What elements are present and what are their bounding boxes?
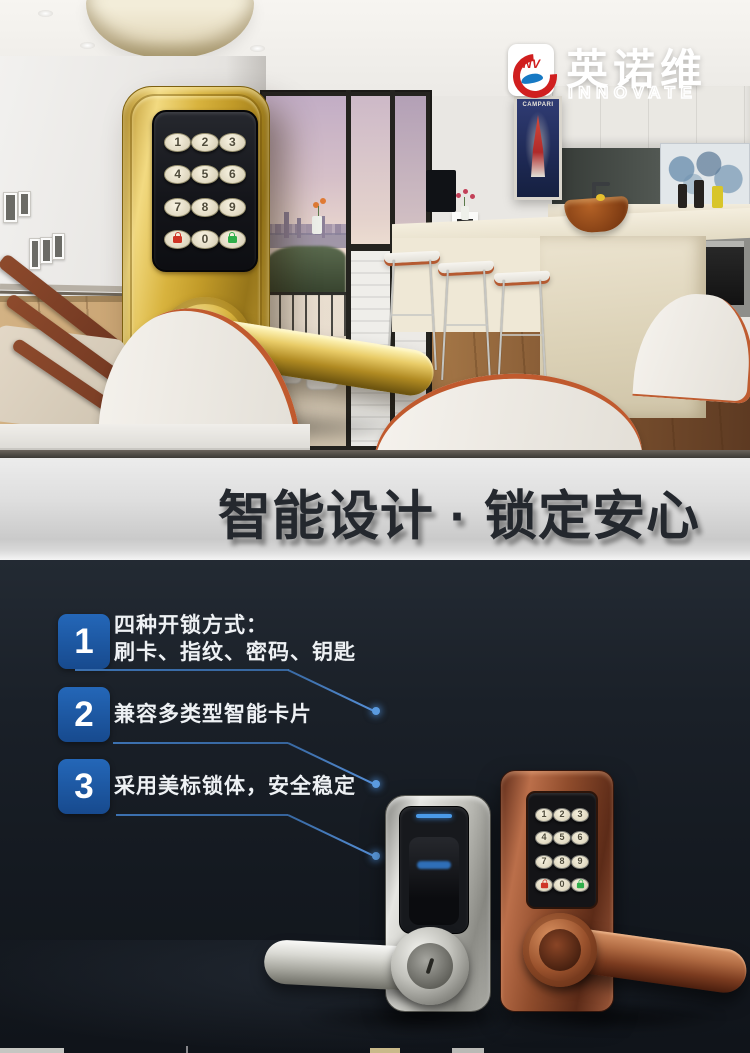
keypad-button-4: 4 xyxy=(535,831,553,845)
lock-icon xyxy=(173,236,182,243)
campari-poster: CAMPARI xyxy=(514,96,562,200)
feature-badge-3: 3 xyxy=(58,759,110,814)
feature-1-line-1: 四种开锁方式： xyxy=(114,612,268,639)
brand-name-english: INNOVATE xyxy=(568,83,697,103)
ceiling-spotlight xyxy=(250,45,265,52)
keypad-button-7: 7 xyxy=(164,198,191,217)
dining-table xyxy=(0,424,310,450)
logo-emblem-text: INV xyxy=(519,57,541,71)
next-section-fragment xyxy=(0,1048,64,1053)
next-section-fragment xyxy=(186,1046,188,1053)
keypad-button-3: 3 xyxy=(571,808,589,822)
unlock-icon xyxy=(228,236,237,243)
red-flower xyxy=(470,194,475,199)
product-poster-page: CAMPARI xyxy=(0,0,750,1053)
slogan-banner: 智能设计 · 锁定安心 xyxy=(0,458,750,560)
keypad-button-0: 0 xyxy=(553,878,571,892)
keypad-button-2: 2 xyxy=(191,133,218,152)
keypad-button-2: 2 xyxy=(553,808,571,822)
keypad-button-unlock xyxy=(219,230,246,249)
feature-2-dot xyxy=(372,780,380,788)
flower-vase xyxy=(461,206,469,220)
features-section: 1 四种开锁方式： 刷卡、指纹、密码、钥匙 2 兼容多类型智能卡片 3 采用美标… xyxy=(0,560,750,1053)
next-section-fragment xyxy=(452,1048,484,1053)
keypad-button-lock xyxy=(164,230,191,249)
keypad-button-9: 9 xyxy=(571,855,589,869)
keypad-button-8: 8 xyxy=(191,198,218,217)
keypad-button-6: 6 xyxy=(219,165,246,184)
gold-keypad-panel: 1 2 3 4 5 6 7 8 9 0 xyxy=(152,110,258,272)
feature-3-underline xyxy=(116,814,288,816)
next-section-fragment xyxy=(370,1048,400,1053)
feature-1-underline xyxy=(75,669,289,671)
feature-1-dot xyxy=(372,707,380,715)
brand-logo: INV 英诺维 INNOVATE xyxy=(508,36,746,104)
section-divider xyxy=(0,450,750,458)
feature-1-line-2: 刷卡、指纹、密码、钥匙 xyxy=(114,639,356,666)
keypad-button-5: 5 xyxy=(553,831,571,845)
faucet-spout xyxy=(592,182,610,186)
keypad-button-9: 9 xyxy=(219,198,246,217)
hero-photo: CAMPARI xyxy=(0,0,750,450)
feature-badge-2: 2 xyxy=(58,687,110,742)
status-led xyxy=(416,814,452,818)
ceiling-spotlight xyxy=(38,10,53,17)
red-flower xyxy=(456,193,461,198)
slogan-title: 智能设计 · 锁定安心 xyxy=(218,474,700,550)
keypad-button-4: 4 xyxy=(164,165,191,184)
silver-fingerprint-lock xyxy=(268,790,498,1020)
red-flower xyxy=(463,189,468,194)
wall-picture-frame xyxy=(18,191,31,217)
keypad-button-6: 6 xyxy=(571,831,589,845)
feature-badge-1: 1 xyxy=(58,614,110,669)
keypad-button-1: 1 xyxy=(164,133,191,152)
counter-bottle xyxy=(678,184,687,208)
feature-2-underline xyxy=(113,742,288,744)
keypad-button-0: 0 xyxy=(191,230,218,249)
fingerprint-panel xyxy=(399,806,469,934)
fingerprint-glow xyxy=(417,861,451,869)
keypad-button-unlock xyxy=(571,878,589,892)
lock-icon xyxy=(540,883,547,889)
wall-picture-frame xyxy=(3,192,18,223)
fruit xyxy=(596,194,605,201)
keypad-button-7: 7 xyxy=(535,855,553,869)
fingerprint-reader xyxy=(409,837,459,925)
logo-emblem: INV xyxy=(508,44,554,96)
counter-bottle-yellow xyxy=(712,186,723,208)
unlock-icon xyxy=(576,883,583,889)
keypad-button-lock xyxy=(535,878,553,892)
counter-bottle xyxy=(694,180,704,208)
ceiling-spotlight xyxy=(80,42,95,49)
copper-keypad-lock: 1 2 3 4 5 6 7 8 9 xyxy=(498,765,750,1017)
feature-2-line-1: 兼容多类型智能卡片 xyxy=(114,701,312,728)
keypad-button-8: 8 xyxy=(553,855,571,869)
wall-picture-frame xyxy=(52,233,65,260)
copper-lock-keyhole xyxy=(539,929,581,971)
copper-keypad-panel: 1 2 3 4 5 6 7 8 9 xyxy=(526,791,598,909)
keypad-button-5: 5 xyxy=(191,165,218,184)
keypad-button-3: 3 xyxy=(219,133,246,152)
backsplash-art xyxy=(660,143,750,205)
keypad-button-1: 1 xyxy=(535,808,553,822)
